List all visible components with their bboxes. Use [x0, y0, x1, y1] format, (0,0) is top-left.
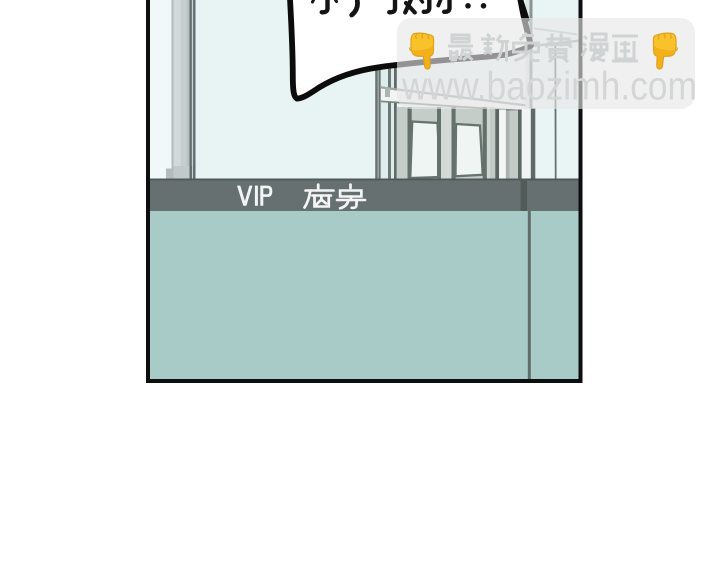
svg-text:www.baozimh.com: www.baozimh.com	[401, 65, 697, 109]
